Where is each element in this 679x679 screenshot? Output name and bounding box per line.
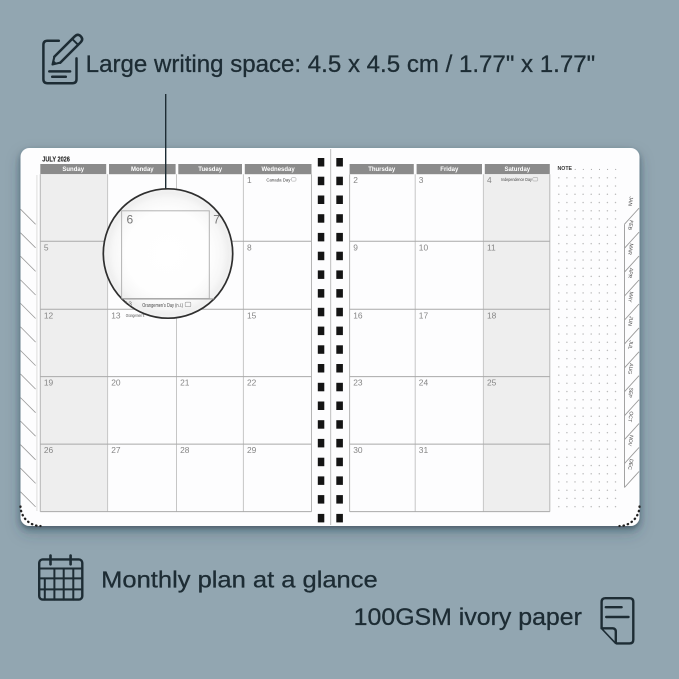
- svg-text:17: 17: [419, 310, 429, 320]
- svg-text:4: 4: [487, 175, 492, 185]
- svg-text:10: 10: [419, 242, 429, 252]
- svg-text:13: 13: [111, 310, 121, 320]
- svg-text:19: 19: [44, 378, 54, 388]
- svg-text:9: 9: [353, 242, 358, 252]
- svg-text:16: 16: [353, 310, 363, 320]
- svg-text:23: 23: [353, 378, 363, 388]
- svg-text:31: 31: [419, 445, 429, 455]
- svg-text:28: 28: [180, 445, 190, 455]
- svg-text:15: 15: [247, 310, 257, 320]
- svg-text:21: 21: [180, 378, 190, 388]
- svg-text:11: 11: [487, 242, 496, 252]
- svg-text:Wednesday: Wednesday: [261, 167, 295, 173]
- svg-text:Canada Day: Canada Day: [266, 177, 290, 183]
- svg-text:Monthly plan at a glance: Monthly plan at a glance: [101, 567, 378, 593]
- svg-text:22: 22: [247, 378, 257, 388]
- svg-text:Thursday: Thursday: [368, 167, 396, 173]
- svg-text:20: 20: [111, 378, 121, 388]
- svg-text:6: 6: [127, 212, 134, 226]
- svg-text:2: 2: [353, 175, 358, 185]
- svg-text:5: 5: [44, 242, 49, 252]
- svg-text:Large writing space: 4.5 x 4.5: Large writing space: 4.5 x 4.5 cm / 1.77…: [86, 51, 595, 78]
- svg-text:Orangemen’s Day (n.i.): Orangemen’s Day (n.i.): [142, 303, 183, 309]
- svg-text:Friday: Friday: [440, 167, 459, 173]
- svg-text:JULY 2026: JULY 2026: [42, 154, 70, 163]
- svg-text:29: 29: [247, 445, 257, 455]
- svg-text:27: 27: [111, 445, 121, 455]
- svg-text:Monday: Monday: [131, 167, 154, 173]
- svg-text:Saturday: Saturday: [504, 167, 530, 173]
- svg-text:Sunday: Sunday: [62, 167, 84, 173]
- svg-text:7: 7: [213, 212, 220, 226]
- svg-text:8: 8: [247, 242, 252, 252]
- svg-text:12: 12: [44, 310, 54, 320]
- svg-text:25: 25: [487, 378, 497, 388]
- svg-text:Independence Day: Independence Day: [501, 177, 532, 183]
- svg-text:1: 1: [247, 175, 252, 185]
- svg-text:26: 26: [44, 445, 54, 455]
- svg-text:3: 3: [419, 175, 424, 185]
- svg-text:Tuesday: Tuesday: [198, 167, 223, 173]
- svg-text:24: 24: [419, 378, 429, 388]
- svg-text:30: 30: [353, 445, 363, 455]
- svg-text:100GSM ivory paper: 100GSM ivory paper: [354, 604, 582, 631]
- svg-text:NOTE: NOTE: [558, 166, 573, 172]
- svg-text:18: 18: [487, 310, 497, 320]
